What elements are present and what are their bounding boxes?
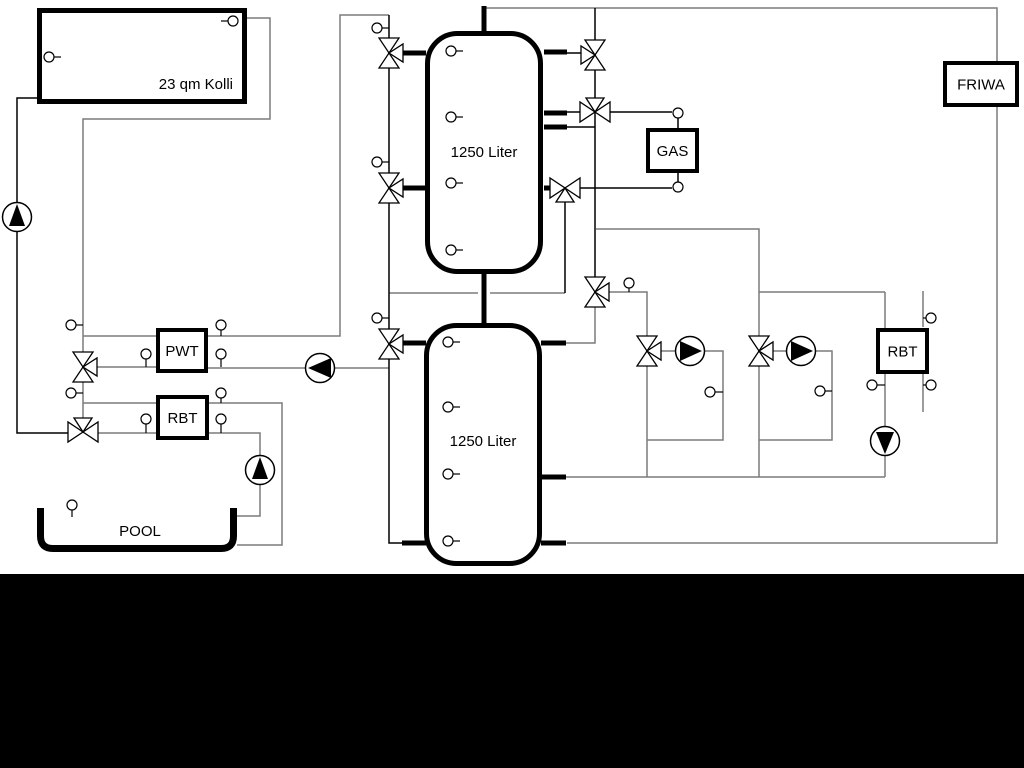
- sensor-rbt-right-sec-bottom: [923, 380, 936, 390]
- valve-chain-top: [379, 38, 403, 68]
- letterbox-bottom: [0, 574, 1024, 768]
- sensor-riser-2: [66, 388, 83, 398]
- heating-circuit-2-pump-icon: [787, 337, 816, 366]
- pipe-tank2-top-right: [565, 307, 595, 343]
- pool-label: POOL: [119, 523, 161, 540]
- valve-chain-bottom: [379, 329, 403, 359]
- sensor-gas-bottom: [673, 182, 683, 192]
- tank1-label: 1250 Liter: [451, 144, 518, 161]
- sensor-riser-1: [66, 320, 83, 330]
- tank2-label: 1250 Liter: [450, 433, 517, 450]
- pipe-collector-return: [17, 98, 68, 433]
- pipe-feed-circuit1: [609, 292, 647, 336]
- pool-pump-icon: [246, 456, 275, 485]
- valve-tank1-top-right: [581, 40, 605, 70]
- component-boxes: [40, 11, 1018, 564]
- pwt-label: PWT: [165, 343, 198, 360]
- sensor-rbt-left-out-bottom: [216, 414, 226, 433]
- screenshot-stage: 23 qm Kolli 1250 Liter 1250 Liter GAS FR…: [0, 0, 1024, 768]
- sensor-chain-3: [372, 313, 389, 323]
- rbt-right-pump-icon: [871, 427, 900, 456]
- heating-circuit-1-pump-icon: [676, 337, 705, 366]
- valve-rbt-left: [68, 418, 98, 442]
- sensor-circuit2-loop: [815, 386, 832, 396]
- sensor-circuit-feed: [624, 278, 634, 292]
- gas-label: GAS: [657, 143, 689, 160]
- sensor-rbt-right-sec-top: [923, 313, 936, 323]
- sensor-pool: [67, 500, 77, 517]
- hydraulic-schematic: 23 qm Kolli 1250 Liter 1250 Liter GAS FR…: [0, 0, 1024, 768]
- sensor-gas-top: [673, 108, 683, 118]
- valve-chain-mid: [379, 173, 403, 203]
- pipe-feed-circuit2: [596, 229, 759, 336]
- valve-circuit1-mixer: [637, 336, 661, 366]
- sensor-circuit1-loop: [705, 387, 723, 397]
- collector-label: 23 qm Kolli: [159, 76, 233, 93]
- sensor-pwt-out-bottom: [216, 349, 226, 367]
- sensor-rbt-right-return: [867, 380, 885, 390]
- sensor-chain-1: [372, 23, 389, 33]
- solar-pump-icon: [3, 203, 32, 232]
- sensor-pwt-in-bottom: [141, 349, 151, 367]
- rbt-right-label: RBT: [888, 344, 918, 361]
- pipe-valve-chain: [389, 15, 403, 543]
- rbt-left-label: RBT: [168, 410, 198, 427]
- pipe-friwa-loop: [484, 8, 997, 543]
- sensor-chain-2: [372, 157, 389, 167]
- valve-pwt: [73, 352, 97, 382]
- sensor-rbt-left-in-bottom: [141, 414, 151, 433]
- valve-circuit2-mixer: [749, 336, 773, 366]
- valve-circuit-diverter: [585, 277, 609, 307]
- sensor-rbt-left-out-top: [216, 388, 226, 403]
- sensor-pwt-out-top: [216, 320, 226, 336]
- tank-charge-pump-icon: [306, 354, 335, 383]
- valve-gas-return: [550, 178, 580, 202]
- friwa-label: FRIWA: [957, 77, 1005, 94]
